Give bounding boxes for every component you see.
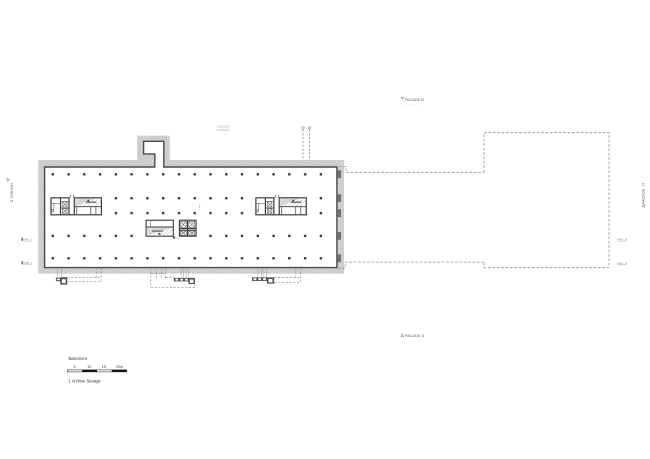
svg-text:20m: 20m — [116, 365, 123, 369]
svg-text:5: 5 — [73, 365, 75, 369]
svg-text:10: 10 — [87, 365, 91, 369]
svg-text:FACADE: FACADE — [405, 333, 421, 338]
svg-text:0451_B: 0451_B — [617, 238, 627, 242]
svg-text:1: 1 — [199, 205, 201, 209]
svg-text:FACADE: FACADE — [405, 97, 421, 102]
svg-text:Basement: Basement — [69, 356, 88, 361]
svg-text:FACADE: FACADE — [640, 188, 645, 204]
svg-text:1:100 (A1): 1:100 (A1) — [217, 128, 230, 132]
svg-text:B: B — [421, 97, 424, 102]
svg-text:C: C — [10, 200, 15, 203]
svg-text:A: A — [422, 333, 425, 338]
svg-text:..............................: ..................................... — [402, 104, 422, 106]
svg-text:FACADE: FACADE — [10, 183, 15, 199]
svg-text:1 Archive Storage: 1 Archive Storage — [69, 379, 102, 384]
svg-text:15: 15 — [102, 365, 106, 369]
svg-text:D: D — [640, 183, 645, 186]
